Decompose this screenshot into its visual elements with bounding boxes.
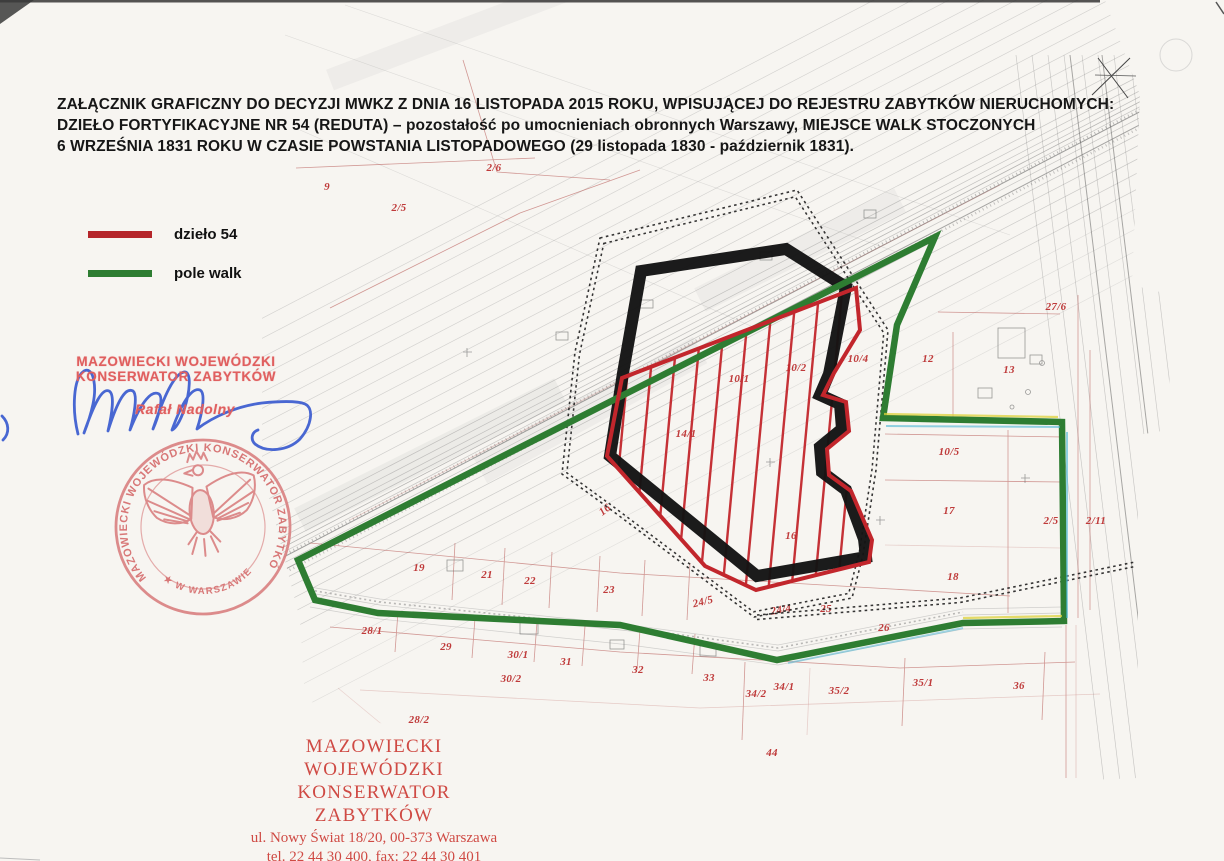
stamp-office-line-2: KONSERWATOR ZABYTKÓW bbox=[64, 369, 288, 384]
footer-address: ul. Nowy Świat 18/20, 00-373 Warszawa bbox=[240, 829, 508, 848]
footer-org-line-2: KONSERWATOR ZABYTKÓW bbox=[240, 781, 508, 827]
stamp-office-line-1: MAZOWIECKI WOJEWÓDZKI bbox=[64, 354, 288, 369]
red-line-swatch bbox=[88, 231, 152, 238]
scanned-decision-annex-page: 2/692/527/6121310/410/210/114/110/517161… bbox=[0, 0, 1224, 861]
legend-label: pole walk bbox=[174, 265, 242, 282]
legend-label: dzieło 54 bbox=[174, 226, 237, 243]
pole-walk-boundary bbox=[298, 237, 1064, 660]
legend-item-pole-walk: pole walk bbox=[88, 263, 242, 283]
title-line-1: ZAŁĄCZNIK GRAFICZNY DO DECYZJI MWKZ Z DN… bbox=[57, 94, 1155, 115]
map-legend: dzieło 54 pole walk bbox=[88, 224, 242, 302]
title-line-2: DZIEŁO FORTYFIKACYJNE NR 54 (REDUTA) – p… bbox=[57, 115, 1155, 136]
footer-phones: tel. 22 44 30 400, fax: 22 44 30 401 bbox=[240, 848, 508, 861]
green-line-swatch bbox=[88, 270, 152, 277]
approval-stamp: MAZOWIECKI WOJEWÓDZKI KONSERWATOR ZABYTK… bbox=[64, 354, 288, 417]
title-line-3: 6 WRZEŚNIA 1831 ROKU W CZASIE POWSTANIA … bbox=[57, 136, 1155, 157]
annex-title: ZAŁĄCZNIK GRAFICZNY DO DECYZJI MWKZ Z DN… bbox=[57, 94, 1155, 157]
stamp-signer-name: Rafał Nadolny bbox=[64, 401, 288, 417]
footer-org-line-1: MAZOWIECKI WOJEWÓDZKI bbox=[240, 735, 508, 781]
scan-colour-fringe bbox=[788, 414, 1067, 663]
letterhead-footer: MAZOWIECKI WOJEWÓDZKI KONSERWATOR ZABYTK… bbox=[240, 735, 508, 861]
legend-item-dzielo54: dzieło 54 bbox=[88, 224, 242, 244]
